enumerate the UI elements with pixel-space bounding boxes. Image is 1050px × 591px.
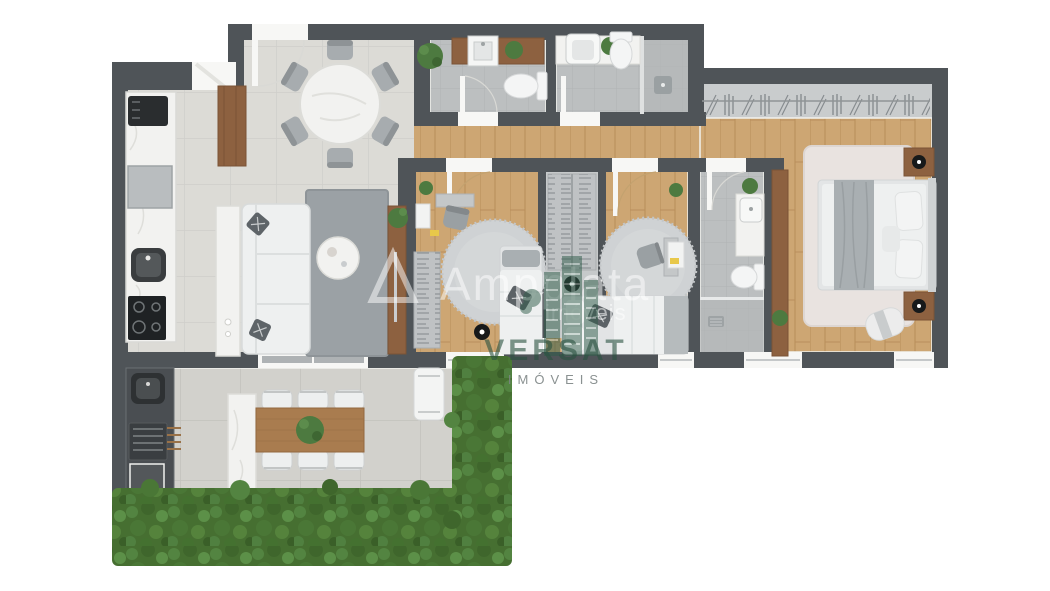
hedge-clump [410,480,430,500]
bedroom-2-door-leaf [613,172,618,216]
shower-head-center [661,83,665,87]
sink-basin [572,40,594,60]
wardrobe-panel [772,170,788,356]
bathroom-2-door-leaf [561,76,566,114]
accent-pillow [882,226,900,252]
plant [419,181,433,195]
plant-leaf [312,431,322,441]
console-decor [226,332,231,337]
bedroom-1-door-gap [446,158,492,172]
wardrobe-clothes [414,252,440,348]
shower-glass-panel [640,36,644,114]
entrance-door-gap [252,24,308,40]
floorplan-image: Ampplata imóveis VERSAT IMÓVEIS [0,0,1050,591]
bathroom-3-door-gap [706,158,746,172]
wall-shelf [668,242,684,268]
bathroom-3-shower-floor [700,300,764,354]
bed-headboard [928,178,936,292]
hedge-right [452,356,512,566]
desk-item [670,258,679,264]
faucet [146,382,150,386]
round-coffee-table [317,237,359,279]
cooktop [128,296,166,340]
wall-bath-divider [546,28,556,116]
hedge-clump [141,479,159,497]
hedge-clump [230,480,250,500]
plant [669,183,683,197]
toilet [504,74,538,98]
wall-dining-entry [414,24,430,124]
toilet [610,39,632,69]
plant [742,178,758,194]
outdoor-sink-basin [136,378,160,399]
hedge-clump [322,479,338,495]
plant-leaf [299,419,309,429]
round-marble-table [300,64,380,144]
hedge-clump [444,412,460,428]
console-decor [225,319,231,325]
faucet [749,207,753,211]
table-lamp-center [917,304,921,308]
slider-panel-2 [314,356,364,363]
plant-leaf [432,57,442,67]
wall-shelf [416,204,430,228]
plant-leaf [399,208,407,216]
desk-item [430,230,439,236]
faucet [481,42,485,46]
table-lamp-center [917,160,921,164]
tall-cabinet [218,86,246,166]
plant [505,41,523,59]
bedroom-2-door-gap [612,158,658,172]
agency-name-text: VERSAT [484,334,627,367]
wall-master-top [688,68,948,84]
table-decor [327,247,337,257]
powder-room-door-gap [458,112,498,126]
plant-leaf [419,45,429,55]
bathroom-2-door-gap [560,112,600,126]
entrance-door-leaf [252,40,258,86]
agency-subtitle-text: IMÓVEIS [508,372,604,387]
desk [436,194,474,207]
powder-room-door-leaf [460,76,465,114]
faucet [146,256,151,261]
toilet [731,266,757,288]
marble-island [228,394,256,494]
floorplan-svg: Ampplata imóveis VERSAT IMÓVEIS [0,0,1050,591]
shower-glass-panel-2 [700,297,764,300]
slider-panel-1 [262,356,312,363]
oven [128,166,172,208]
hedge-clump [443,511,461,529]
bed-pillow [895,191,924,231]
table-decor [341,261,347,267]
plant [772,310,788,326]
bathroom-3-door-leaf [707,172,712,210]
living-room [216,190,408,356]
bed-throw [664,296,688,354]
